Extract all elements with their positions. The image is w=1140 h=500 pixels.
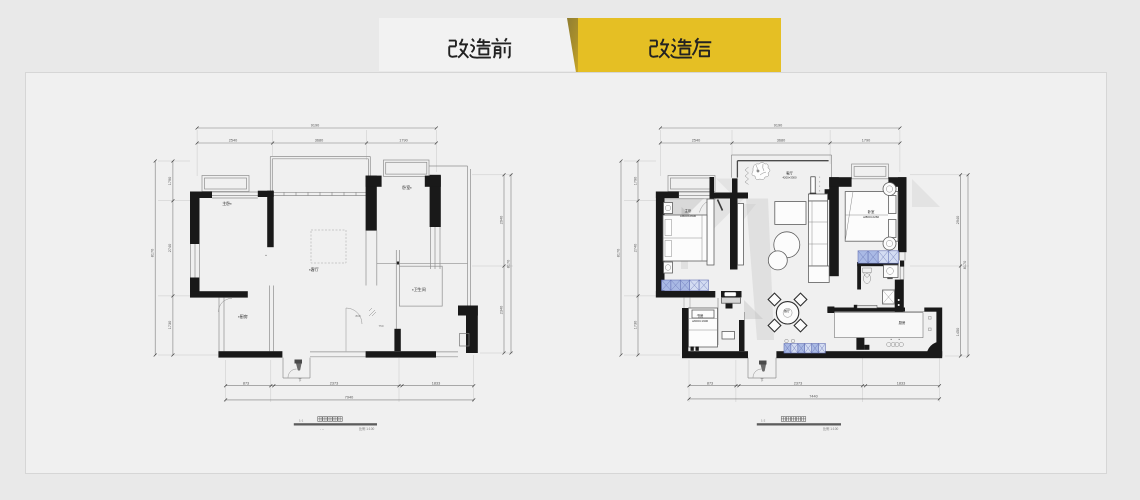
svg-text:2940: 2940 (499, 216, 503, 224)
svg-text:8170: 8170 (506, 260, 510, 268)
svg-text:3680: 3680 (777, 139, 785, 143)
svg-text:比例 1:100: 比例 1:100 (823, 426, 838, 431)
svg-text:▪客厅: ▪客厅 (309, 266, 318, 272)
svg-text:▪厨房: ▪厨房 (238, 313, 247, 319)
svg-text:▪3600×2600: ▪3600×2600 (680, 214, 696, 218)
svg-text:下: 下 (298, 378, 301, 382)
svg-text:800: 800 (355, 314, 360, 318)
svg-text:1790: 1790 (862, 139, 870, 143)
svg-text:卧室▪: 卧室▪ (402, 184, 412, 190)
svg-text:1790: 1790 (399, 139, 407, 143)
svg-text:1-1: 1-1 (299, 419, 304, 423)
svg-text:2540: 2540 (229, 139, 237, 143)
svg-text:8170: 8170 (963, 261, 967, 269)
svg-text:1833: 1833 (432, 381, 440, 385)
svg-text:2340: 2340 (499, 306, 503, 314)
svg-text:4200×3300: 4200×3300 (782, 176, 797, 180)
svg-text:2373: 2373 (330, 381, 338, 385)
svg-text:▪2000×1900: ▪2000×1900 (692, 319, 708, 323)
svg-text:7940: 7940 (345, 396, 353, 400)
svg-text:8170: 8170 (151, 249, 155, 257)
svg-text:2740: 2740 (633, 244, 637, 252)
svg-text:▴: ▴ (265, 253, 267, 257)
svg-text:1833: 1833 (897, 381, 905, 385)
svg-text:8170: 8170 (616, 249, 620, 257)
svg-text:750: 750 (378, 324, 383, 328)
svg-text:2740: 2740 (168, 244, 172, 252)
svg-text:2540: 2540 (692, 139, 700, 143)
svg-text:主卧: 主卧 (685, 208, 692, 213)
svg-text:1730: 1730 (633, 321, 637, 329)
svg-text:比例 1:100: 比例 1:100 (359, 426, 374, 431)
svg-text:2940: 2940 (956, 216, 960, 224)
svg-text:▪2800×2260: ▪2800×2260 (863, 215, 879, 219)
svg-text:主卧▪: 主卧▪ (222, 200, 232, 206)
svg-text:卧室: 卧室 (868, 209, 875, 214)
svg-text:2373: 2373 (794, 381, 802, 385)
svg-text:▪卫生间: ▪卫生间 (412, 286, 425, 292)
svg-text:873: 873 (707, 381, 713, 385)
svg-text:9190: 9190 (311, 124, 319, 128)
svg-text:1450: 1450 (956, 328, 960, 336)
svg-text:书房: 书房 (697, 313, 704, 318)
svg-text:1-2: 1-2 (761, 419, 766, 423)
svg-text:- --: - -- (320, 427, 324, 431)
svg-text:1730: 1730 (168, 321, 172, 329)
svg-text:9190: 9190 (774, 124, 782, 128)
svg-text:餐厅: 餐厅 (784, 308, 790, 313)
svg-text:1790: 1790 (168, 177, 172, 185)
svg-text:下: 下 (760, 378, 763, 382)
svg-text:7440: 7440 (809, 395, 817, 399)
svg-text:873: 873 (243, 381, 249, 385)
svg-text:1790: 1790 (633, 177, 637, 185)
svg-text:3680: 3680 (315, 139, 323, 143)
svg-text:厨房: 厨房 (899, 320, 906, 325)
